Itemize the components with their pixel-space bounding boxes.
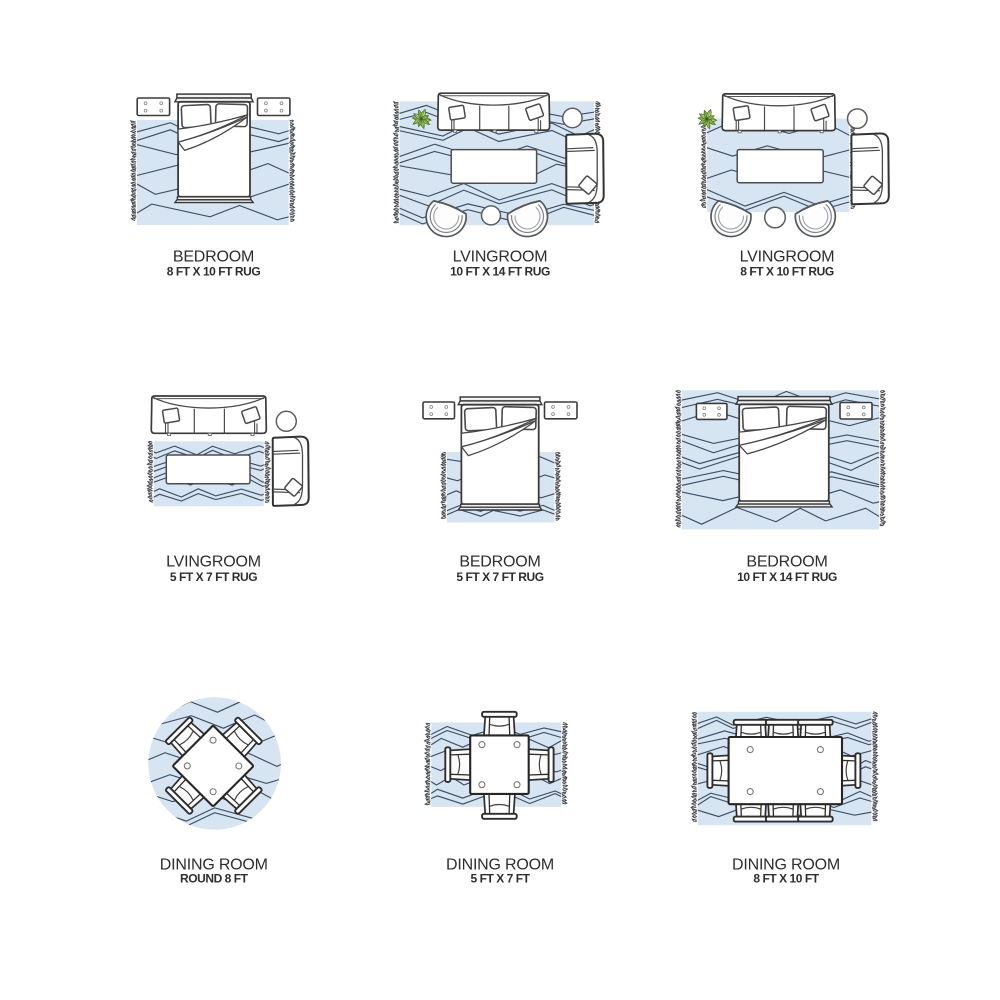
svg-text:BEDROOM: BEDROOM [746,554,827,571]
svg-text:10 FT X 14 FT RUG: 10 FT X 14 FT RUG [450,264,550,278]
svg-text:ROUND 8 FT: ROUND 8 FT [180,872,249,886]
svg-text:10 FT X 14 FT RUG: 10 FT X 14 FT RUG [737,570,837,584]
svg-text:LVINGROOM: LVINGROOM [453,248,548,265]
svg-text:LVINGROOM: LVINGROOM [740,248,835,265]
svg-text:5 FT X 7 FT RUG: 5 FT X 7 FT RUG [170,570,257,584]
svg-text:8 FT X 10 FT RUG: 8 FT X 10 FT RUG [167,264,261,278]
svg-text:8 FT X 10 FT RUG: 8 FT X 10 FT RUG [740,264,834,278]
svg-text:5 FT X 7 FT RUG: 5 FT X 7 FT RUG [456,570,543,584]
svg-text:BEDROOM: BEDROOM [459,554,540,571]
svg-text:5 FT X 7 FT: 5 FT X 7 FT [470,872,530,886]
svg-text:8 FT X 10 FT: 8 FT X 10 FT [753,872,819,886]
svg-text:LVINGROOM: LVINGROOM [166,554,261,571]
svg-text:BEDROOM: BEDROOM [173,248,254,265]
